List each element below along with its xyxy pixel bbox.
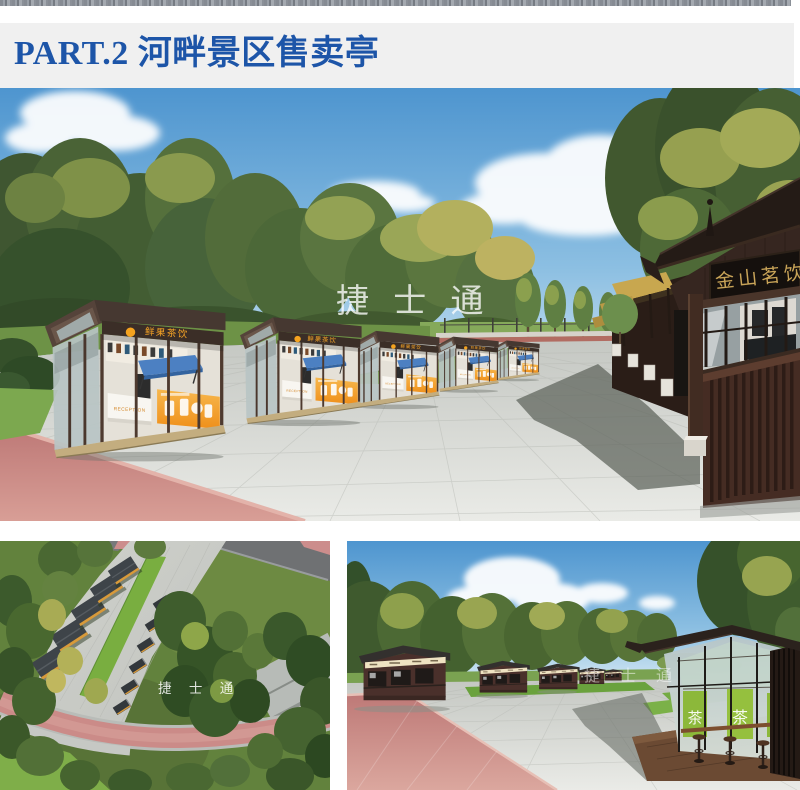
page: PART.2 河畔景区售卖亭 <box>0 0 800 790</box>
street-render-image: 茶 茶 捷 士 通 <box>347 541 800 790</box>
kiosk-4 <box>436 337 499 393</box>
aerial-render-scene: 捷 士 通 <box>0 541 330 790</box>
kiosk-3 <box>352 331 439 409</box>
watermark-text: 捷 士 通 <box>584 667 680 685</box>
street-render-scene: 茶 茶 捷 士 通 <box>347 541 800 790</box>
street-kiosk-1 <box>359 646 450 701</box>
kiosk-2 <box>240 317 362 426</box>
kiosk-1 <box>45 300 226 462</box>
watermark-text: 捷 士 通 <box>158 681 240 696</box>
aerial-render-image: 捷 士 通 <box>0 541 330 790</box>
section-header: PART.2 河畔景区售卖亭 <box>0 23 794 88</box>
main-render-image: RECEPTION 鲜果茶饮 <box>0 88 800 521</box>
main-render-scene: RECEPTION 鲜果茶饮 <box>0 88 800 521</box>
page-top-texture <box>0 0 791 6</box>
street-kiosk-2 <box>477 661 530 693</box>
tea-banner-char: 茶 <box>732 709 748 727</box>
kiosk-5 <box>494 340 540 381</box>
watermark-text: 捷 士 通 <box>336 283 492 320</box>
tea-banner-char: 茶 <box>687 710 702 727</box>
section-title: PART.2 河畔景区售卖亭 <box>0 23 794 72</box>
street-kiosk-3 <box>537 664 580 690</box>
